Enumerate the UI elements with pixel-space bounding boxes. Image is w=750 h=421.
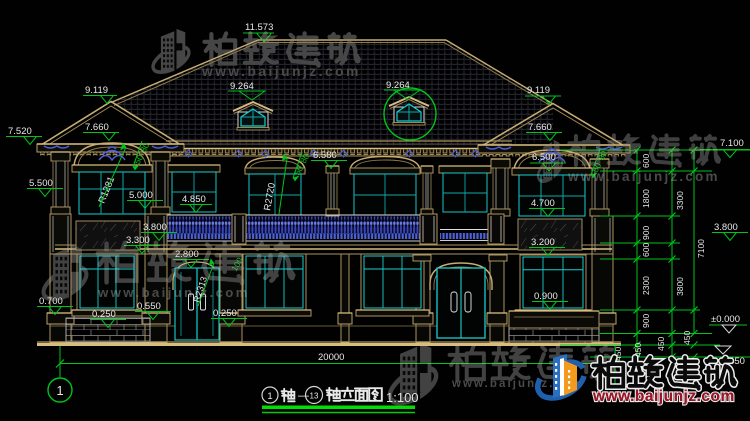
svg-text:900: 900	[641, 314, 651, 328]
svg-text:20000: 20000	[318, 352, 344, 363]
svg-text:9.119: 9.119	[527, 85, 550, 96]
svg-text:13: 13	[310, 392, 319, 401]
svg-text:3.800: 3.800	[714, 222, 738, 233]
svg-text:3.800: 3.800	[143, 222, 167, 233]
svg-text:600: 600	[641, 154, 651, 168]
svg-text:2300: 2300	[641, 276, 651, 295]
svg-text:3300: 3300	[675, 191, 685, 210]
svg-text:www.baijunjz.com: www.baijunjz.com	[97, 285, 250, 300]
svg-text:3800: 3800	[675, 277, 685, 296]
svg-text:7.660: 7.660	[85, 122, 109, 133]
svg-text:5.500: 5.500	[29, 178, 53, 189]
svg-text:4.850: 4.850	[182, 194, 206, 205]
svg-text:11.573: 11.573	[245, 22, 273, 33]
svg-text:9.264: 9.264	[230, 81, 254, 92]
svg-text:4.700: 4.700	[531, 198, 555, 209]
svg-text:900: 900	[641, 226, 651, 240]
svg-text:7.100: 7.100	[720, 138, 744, 149]
svg-text:7.660: 7.660	[528, 122, 552, 133]
svg-text:1800: 1800	[641, 189, 651, 208]
svg-text:0.250: 0.250	[213, 308, 237, 319]
svg-text:6.580: 6.580	[313, 150, 337, 161]
svg-text:450: 450	[682, 331, 692, 345]
svg-text:600: 600	[641, 243, 651, 257]
svg-text:9.119: 9.119	[85, 85, 108, 96]
svg-text:www.baijunjz.com: www.baijunjz.com	[592, 388, 735, 405]
svg-text:±0.000: ±0.000	[711, 314, 740, 325]
svg-text:0.550: 0.550	[137, 301, 161, 312]
svg-text:5.000: 5.000	[129, 190, 153, 201]
svg-text:9.264: 9.264	[386, 80, 410, 91]
svg-text:www.baijunjz.com: www.baijunjz.com	[201, 64, 361, 79]
svg-text:7.520: 7.520	[8, 126, 32, 137]
svg-text:7100: 7100	[696, 239, 706, 258]
svg-text:0.250: 0.250	[92, 309, 116, 320]
svg-text:3.300: 3.300	[126, 235, 150, 246]
svg-text:3.200: 3.200	[531, 237, 555, 248]
svg-text:1: 1	[56, 383, 63, 398]
svg-text:1: 1	[267, 391, 272, 402]
svg-text:www.baijunjz.com: www.baijunjz.com	[567, 169, 720, 184]
svg-text:450: 450	[656, 337, 666, 351]
svg-text:0.900: 0.900	[534, 291, 558, 302]
